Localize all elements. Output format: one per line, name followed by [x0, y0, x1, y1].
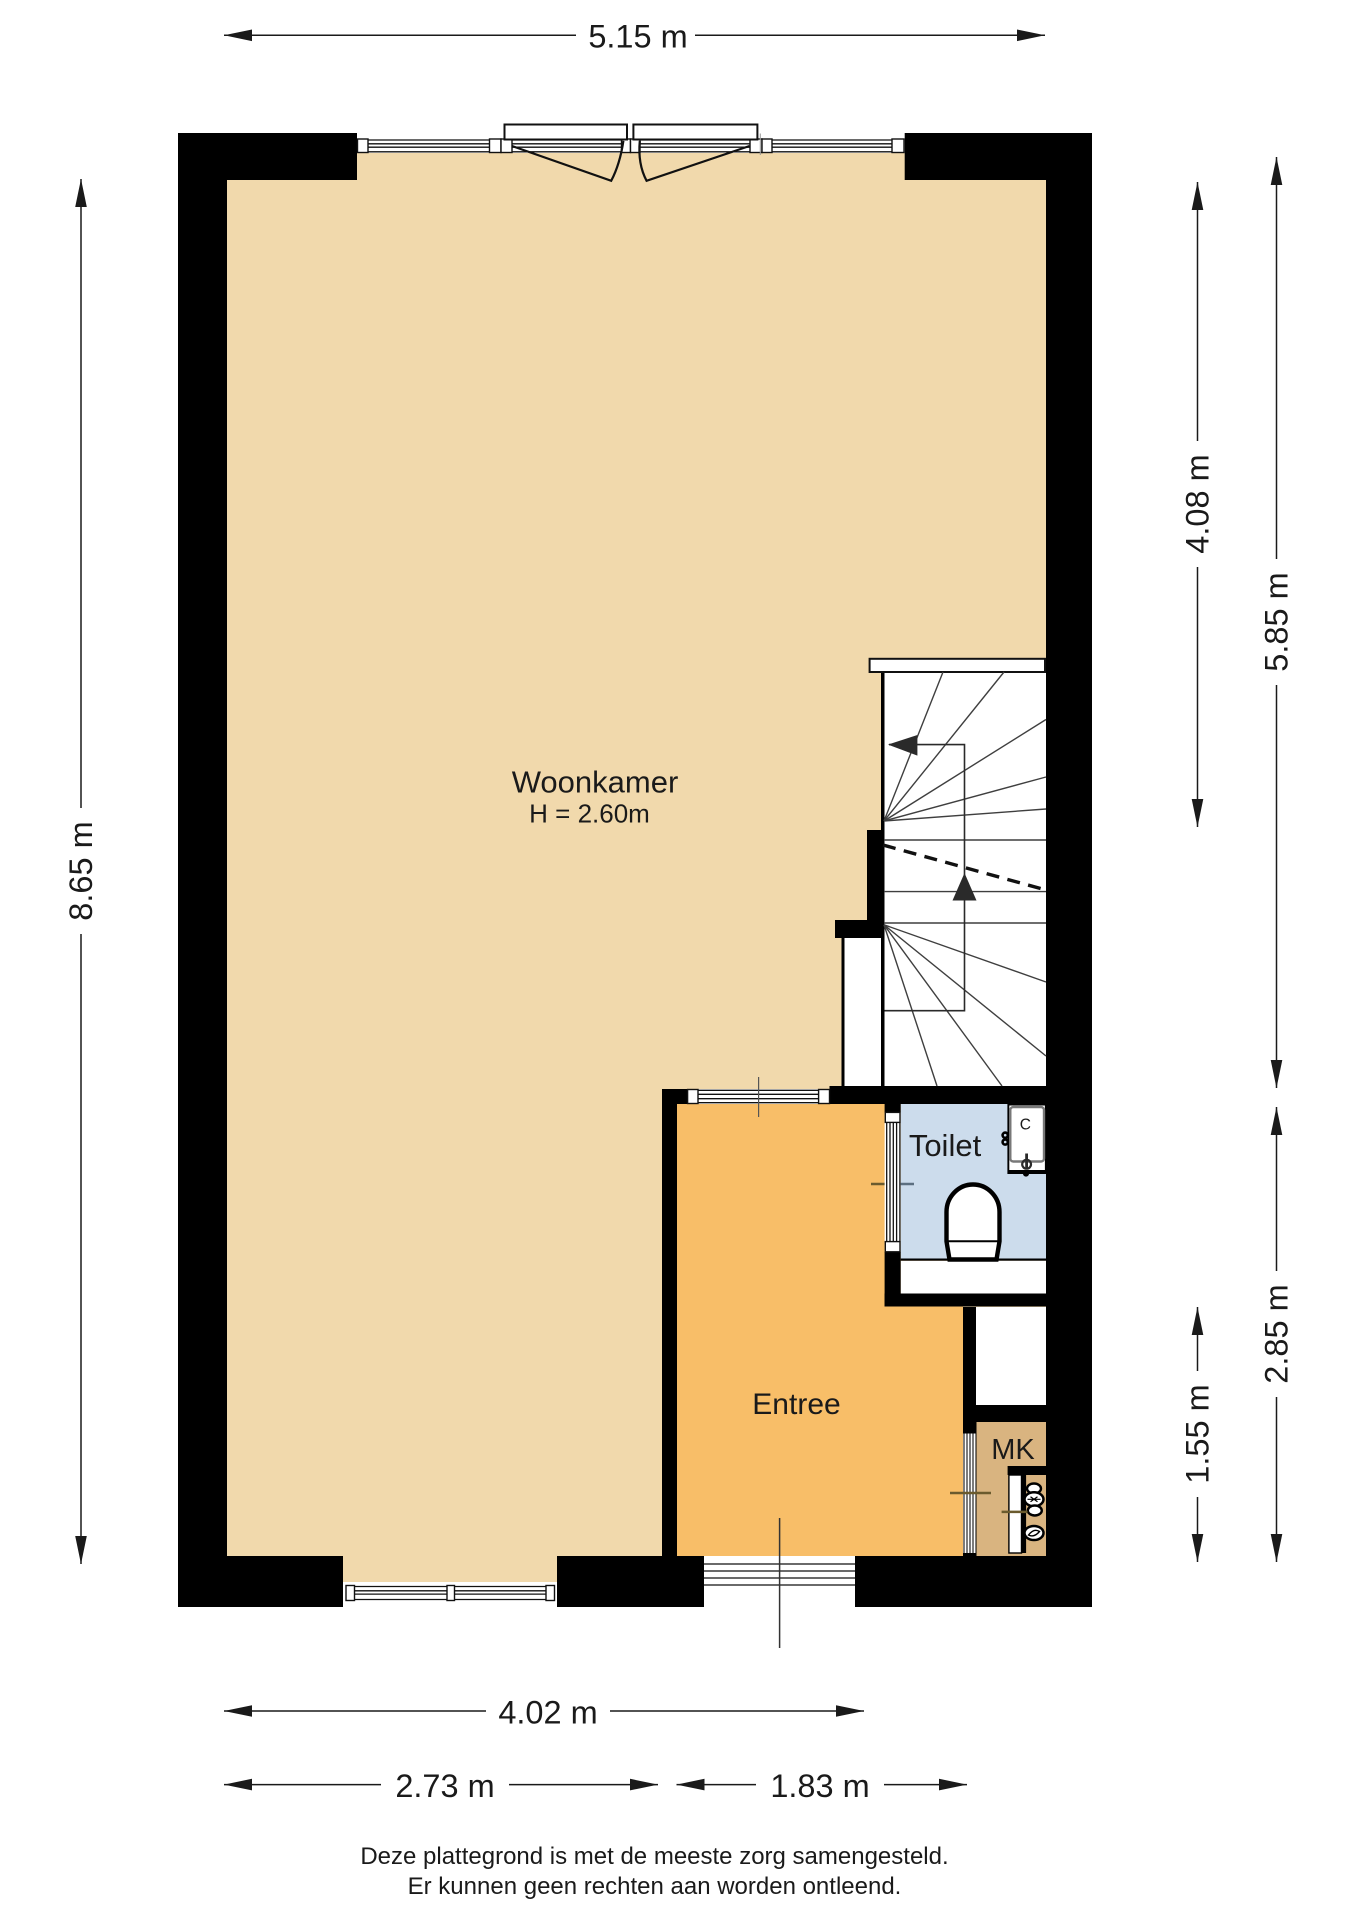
svg-text:Entree: Entree — [752, 1388, 840, 1421]
svg-text:5.85 m: 5.85 m — [1259, 572, 1295, 671]
svg-text:C: C — [1020, 1117, 1031, 1134]
svg-text:8.65 m: 8.65 m — [63, 821, 99, 920]
svg-text:2.85 m: 2.85 m — [1259, 1284, 1295, 1383]
svg-text:Woonkamer: Woonkamer — [512, 765, 679, 800]
svg-text:1.83 m: 1.83 m — [770, 1768, 869, 1804]
svg-text:Deze plattegrond is met de mee: Deze plattegrond is met de meeste zorg s… — [360, 1843, 948, 1870]
svg-text:MK: MK — [991, 1434, 1035, 1466]
svg-text:4.08 m: 4.08 m — [1180, 454, 1216, 553]
svg-text:4.02 m: 4.02 m — [498, 1694, 597, 1730]
svg-text:Toilet: Toilet — [909, 1128, 982, 1163]
svg-text:5.15 m: 5.15 m — [588, 19, 687, 55]
svg-text:1.55 m: 1.55 m — [1180, 1384, 1216, 1483]
svg-text:H = 2.60m: H = 2.60m — [529, 799, 650, 829]
svg-text:Er kunnen geen rechten aan wor: Er kunnen geen rechten aan worden ontlee… — [408, 1873, 902, 1900]
svg-text:2.73 m: 2.73 m — [395, 1768, 494, 1804]
